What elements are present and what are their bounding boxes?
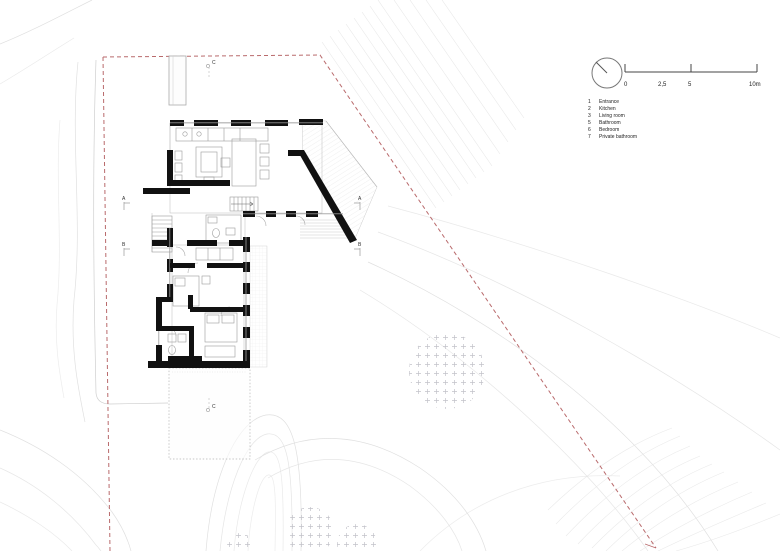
legend-label: Bedroom xyxy=(599,127,619,134)
legend-label: Private bathroom xyxy=(599,134,637,141)
legend-number: 1 xyxy=(588,99,599,106)
slope-hatch-southeast xyxy=(548,428,780,551)
svg-text:B: B xyxy=(358,242,362,248)
section-marker-b-right: B xyxy=(354,242,362,256)
svg-text:C: C xyxy=(212,60,216,66)
legend-label: Kitchen xyxy=(599,106,616,113)
north-indicator xyxy=(592,58,622,88)
legend-item: 5 Bathroom xyxy=(588,120,637,127)
room-legend: 1 Entrance 2 Kitchen 3 Living room 5 Bat… xyxy=(588,99,637,141)
legend-item: 2 Kitchen xyxy=(588,106,637,113)
legend-number: 6 xyxy=(588,127,599,134)
legend-label: Living room xyxy=(599,113,625,120)
legend-number: 2 xyxy=(588,106,599,113)
tree xyxy=(409,333,485,409)
legend-number: 3 xyxy=(588,113,599,120)
north-needle xyxy=(596,62,607,73)
legend-label: Bathroom xyxy=(599,120,621,127)
section-marker-c-top: C xyxy=(206,60,216,78)
legend-number: 7 xyxy=(588,134,599,141)
legend-item: 1 Entrance xyxy=(588,99,637,106)
site-plan-canvas: A A B B C C xyxy=(0,0,780,551)
svg-text:B: B xyxy=(122,242,126,248)
legend-item: 3 Living room xyxy=(588,113,637,120)
scale-bar: 0 2,5 5 10m xyxy=(624,64,761,88)
site-plan-drawing: A A B B C C xyxy=(0,0,780,551)
walkway-strip-east xyxy=(250,246,267,367)
legend-number: 5 xyxy=(588,120,599,127)
legend-item: 7 Private bathroom xyxy=(588,134,637,141)
site-boundary xyxy=(103,55,656,551)
scale-label-10m: 10m xyxy=(749,82,761,88)
legend-item: 6 Bedroom xyxy=(588,127,637,134)
svg-text:A: A xyxy=(122,196,126,202)
section-marker-b-left: B xyxy=(122,242,130,256)
garden-wall-north xyxy=(169,56,186,105)
section-marker-a-left: A xyxy=(122,196,130,210)
svg-text:C: C xyxy=(212,404,216,410)
terrace xyxy=(169,368,250,459)
scale-label-2-5: 2,5 xyxy=(658,82,667,88)
legend-label: Entrance xyxy=(599,99,619,106)
scale-label-0: 0 xyxy=(624,82,628,88)
tree xyxy=(286,507,334,551)
tree xyxy=(337,524,377,551)
scale-label-5: 5 xyxy=(688,82,692,88)
